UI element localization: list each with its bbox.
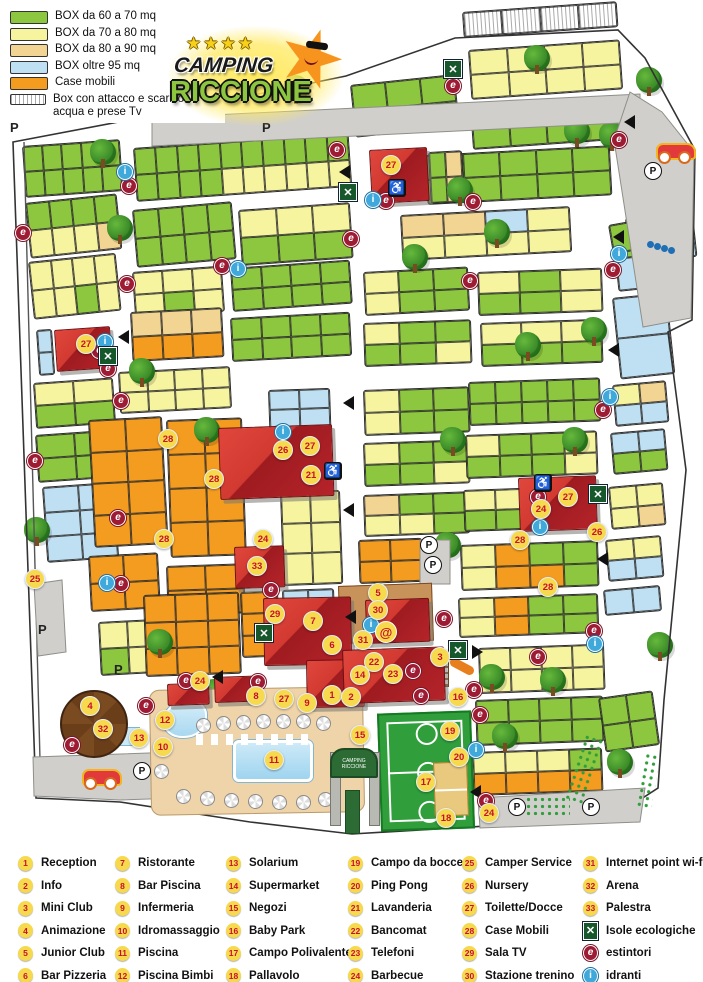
key-number: 32 [583,878,598,893]
key-label: estintori [606,947,651,959]
key-number: 8 [115,878,130,893]
fountain-icon [597,552,608,566]
key-label: Solarium [249,857,298,869]
marker-18: 18 [436,808,456,828]
handicap-icon: ♿ [534,474,552,492]
extinguisher-icon: e [530,649,546,665]
key-item-est: eestintori [583,942,703,965]
four-stars-rating: ★★★★ [186,34,255,54]
key-number: 15 [226,901,241,916]
key-number: 21 [348,901,363,916]
key-number: 2 [18,878,33,893]
marker-16: 16 [448,687,468,707]
key-number: 5 [18,946,33,961]
eco-island-icon: ✕ [589,485,607,503]
legend-swatch-g [10,11,48,24]
extinguisher-icon: e [343,231,359,247]
key-column: 25Camper Service26Nursery27Toilette/Docc… [462,852,574,982]
key-number: 17 [226,946,241,961]
key-label: Ristorante [138,857,195,869]
extinguisher-icon: e [611,132,627,148]
extinguisher-icon: e [119,276,135,292]
hydrant-icon: i [468,742,484,758]
extinguisher-icon: e [465,194,481,210]
key-label: Negozi [249,902,287,914]
marker-23: 23 [383,664,403,684]
umbrella-icon [176,789,191,804]
extinguisher-icon: e [110,510,126,526]
key-item-2: 2Info [18,875,106,898]
marker-7: 7 [303,611,323,631]
hedge [345,790,360,834]
key-label: Campo Polivalente [249,947,352,959]
umbrella-icon [200,791,215,806]
marker-28: 28 [538,577,558,597]
key-label: Barbecue [371,970,423,982]
legend-label: BOX oltre 95 mq [55,60,140,73]
key-label: Baby Park [249,925,305,937]
key-item-25: 25Camper Service [462,852,574,875]
key-label: Bancomat [371,925,427,937]
parking-circle: P [644,162,662,180]
key-number: 25 [462,856,477,871]
key-item-14: 14Supermarket [226,875,352,898]
extinguisher-icon: e [15,225,31,241]
marker-10: 10 [153,737,173,757]
key-item-10: 10Idromassaggio [115,920,220,943]
marker-27: 27 [76,334,96,354]
key-item-26: 26Nursery [462,875,574,898]
umbrella-icon [236,715,251,730]
key-number: 9 [115,901,130,916]
eco-island-icon: ✕ [449,641,467,659]
marker-15: 15 [350,725,370,745]
key-label: idranti [606,970,641,982]
key-item-22: 22Bancomat [348,920,463,943]
key-number: 30 [462,968,477,982]
key-label: Junior Club [41,947,105,959]
key-item-6: 6Bar Pizzeria [18,965,106,982]
fountain-icon [343,396,354,410]
key-item-8: 8Bar Piscina [115,875,220,898]
legend-label: BOX da 70 a 80 mq [55,27,156,40]
key-item-idr: iidranti [583,965,703,982]
key-item-19: 19Campo da bocce [348,852,463,875]
marker-24: 24 [479,803,499,823]
key-number: 24 [348,968,363,982]
parking-label: P [38,622,47,637]
left-parking-strip [34,580,66,656]
marker-31: 31 [353,630,373,650]
key-number: 23 [348,946,363,961]
key-label: Campo da bocce [371,857,463,869]
marker-26: 26 [273,440,293,460]
blue-dot [661,245,668,252]
marker-6: 6 [322,635,342,655]
hydrant-icon: i [532,519,548,535]
entrance-sign: CAMPING RICCIONE [330,748,378,778]
key-item-7: 7Ristorante [115,852,220,875]
key-label: Stazione trenino [485,970,574,982]
extinguisher-icon: e [263,582,279,598]
idr-legend-icon: i [583,968,598,982]
key-label: Idromassaggio [138,925,220,937]
legend-item: BOX da 60 a 70 mq [10,10,225,24]
fountain-icon [608,343,619,357]
marker-28: 28 [154,529,174,549]
umbrella-icon [256,714,271,729]
key-number: 28 [462,923,477,938]
extinguisher-icon: e [472,707,488,723]
key-item-29: 29Sala TV [462,942,574,965]
key-number: 22 [348,923,363,938]
key-item-12: 12Piscina Bimbi [115,965,220,982]
key-label: Case Mobili [485,925,549,937]
handicap-icon: ♿ [388,179,406,197]
building-red-roof [518,475,598,532]
hydrant-icon: i [99,575,115,591]
key-label: Animazione [41,925,106,937]
key-label: Arena [606,880,639,892]
marker-12: 12 [155,710,175,730]
key-label: Piscina [138,947,178,959]
marker-26: 26 [587,522,607,542]
fountain-icon [339,165,350,179]
umbrella-icon [216,716,231,731]
fountain-icon [345,610,356,624]
key-label: Info [41,880,62,892]
extinguisher-icon: e [466,682,482,698]
blue-dot [647,241,654,248]
extinguisher-icon: e [445,78,461,94]
key-number: 29 [462,946,477,961]
umbrella-icon [196,718,211,733]
key-item-11: 11Piscina [115,942,220,965]
extinguisher-icon: e [405,663,421,679]
umbrella-icon [154,764,169,779]
key-number: 11 [115,946,130,961]
key-label: Bar Piscina [138,880,201,892]
key-number: 13 [226,856,241,871]
hydrant-icon: i [365,192,381,208]
key-label: Palestra [606,902,651,914]
key-label: Reception [41,857,97,869]
extinguisher-icon: e [113,393,129,409]
marker-3: 3 [430,647,450,667]
key-label: Infermeria [138,902,194,914]
sun-loungers [196,734,312,745]
key-label: Lavanderia [371,902,432,914]
key-item-17: 17Campo Polivalente [226,942,352,965]
map-key: 1Reception2Info3Mini Club4Animazione5Jun… [0,846,703,982]
parking-label: P [114,662,123,677]
camping-riccione-map-page: CAMPING RICCIONE 27272627212828282433292… [0,0,703,982]
umbrella-icon [248,794,263,809]
key-item-4: 4Animazione [18,920,106,943]
key-label: Isole ecologiche [606,925,695,937]
camping-riccione-logo: ★★★★ CAMPING RICCIONE [168,26,343,126]
fountain-icon [472,645,483,659]
umbrella-icon [224,793,239,808]
key-label: Supermarket [249,880,319,892]
key-label: Sala TV [485,947,527,959]
fountain-icon [624,115,635,129]
key-item-9: 9Infermeria [115,897,220,920]
marker-27: 27 [558,487,578,507]
legend-label: Case mobili [55,76,115,89]
marker-27: 27 [300,436,320,456]
marker-25: 25 [25,569,45,589]
key-label: Pallavolo [249,970,300,982]
car-icon [652,138,696,164]
key-number: 20 [348,878,363,893]
key-item-32: 32Arena [583,875,703,898]
key-item-30: 30Stazione trenino [462,965,574,982]
hydrant-icon: i [602,389,618,405]
map-canvas: CAMPING RICCIONE 27272627212828282433292… [0,0,703,840]
legend-label: BOX da 60 a 70 mq [55,10,156,23]
marker-2: 2 [341,687,361,707]
key-item-5: 5Junior Club [18,942,106,965]
hydrant-icon: i [611,246,627,262]
key-item-1: 1Reception [18,852,106,875]
key-number: 4 [18,923,33,938]
key-number: 27 [462,901,477,916]
key-number: 1 [18,856,33,871]
blue-dot [668,247,675,254]
extinguisher-icon: e [138,698,154,714]
parking-circle: P [508,798,526,816]
extinguisher-icon: e [329,142,345,158]
legend-swatch-b [10,61,48,74]
handicap-icon: ♿ [324,462,342,480]
fountain-icon [613,230,624,244]
key-item-16: 16Baby Park [226,920,352,943]
key-item-33: 33Palestra [583,897,703,920]
marker-1: 1 [322,685,342,705]
logo-camping-text: CAMPING [173,54,275,78]
key-item-31: 31Internet point wi-fi [583,852,703,875]
marker-20: 20 [449,747,469,767]
legend-swatch-t [10,44,48,57]
key-number: 31 [583,856,598,871]
extinguisher-icon: e [462,273,478,289]
logo-riccione-text: RICCIONE [170,76,312,109]
extinguisher-icon: e [436,611,452,627]
eco-island-icon: ✕ [444,60,462,78]
key-item-15: 15Negozi [226,897,352,920]
marker-17: 17 [416,772,436,792]
key-item-28: 28Case Mobili [462,920,574,943]
hydrant-icon: i [117,164,133,180]
key-item-18: 18Pallavolo [226,965,352,982]
key-column: 7Ristorante8Bar Piscina9Infermeria10Idro… [115,852,220,982]
key-column: 13Solarium14Supermarket15Negozi16Baby Pa… [226,852,352,982]
extinguisher-icon: e [64,737,80,753]
key-column: 31Internet point wi-fi32Arena33Palestra✕… [583,852,703,982]
parking-circle: P [133,762,151,780]
marker-11: 11 [264,750,284,770]
marker-28: 28 [158,429,178,449]
umbrella-icon [316,716,331,731]
key-label: Internet point wi-fi [606,857,703,869]
marker-27: 27 [274,689,294,709]
extinguisher-icon: e [121,178,137,194]
eco-island-icon: ✕ [255,624,273,642]
extinguisher-icon: e [605,262,621,278]
key-label: Camper Service [485,857,572,869]
key-number: 19 [348,856,363,871]
est-legend-icon: e [583,946,598,961]
marker-27: 27 [381,155,401,175]
umbrella-icon [296,795,311,810]
parking-circle: P [420,536,438,554]
fountain-icon [212,670,223,684]
marker-14: 14 [350,665,370,685]
hydrant-icon: i [230,261,246,277]
extinguisher-icon: e [113,576,129,592]
key-item-27: 27Toilette/Docce [462,897,574,920]
key-item-21: 21Lavanderia [348,897,463,920]
marker-33: 33 [247,556,267,576]
key-number: 16 [226,923,241,938]
key-number: 26 [462,878,477,893]
eco-legend-icon: ✕ [583,923,598,938]
umbrella-icon [272,795,287,810]
marker-24: 24 [190,671,210,691]
parking-circle: P [582,798,600,816]
key-number: 14 [226,878,241,893]
key-number: 12 [115,968,130,982]
marker-30: 30 [368,600,388,620]
marker-24: 24 [253,529,273,549]
fountain-icon [118,330,129,344]
key-item-13: 13Solarium [226,852,352,875]
marker-9: 9 [297,693,317,713]
car-icon [78,764,122,790]
hedge-dots [525,796,570,818]
extinguisher-icon: e [214,258,230,274]
marker-19: 19 [440,721,460,741]
key-number: 10 [115,923,130,938]
marker-21: 21 [301,465,321,485]
marker-4: 4 [80,696,100,716]
eco-island-icon: ✕ [99,347,117,365]
key-item-eco: ✕Isole ecologiche [583,920,703,943]
key-column: 1Reception2Info3Mini Club4Animazione5Jun… [18,852,106,982]
key-label: Bar Pizzeria [41,970,106,982]
internet-at-icon: @ [375,621,397,643]
key-number: 6 [18,968,33,982]
key-number: 7 [115,856,130,871]
marker-24: 24 [531,499,551,519]
marker-32: 32 [93,719,113,739]
legend-swatch-o [10,77,48,90]
key-label: Nursery [485,880,528,892]
key-label: Piscina Bimbi [138,970,213,982]
volleyball-court [433,761,469,816]
eco-island-icon: ✕ [339,183,357,201]
hydrant-icon: i [275,424,291,440]
umbrella-icon [276,714,291,729]
key-item-3: 3Mini Club [18,897,106,920]
key-label: Toilette/Docce [485,902,563,914]
hydrant-icon: i [587,636,603,652]
extinguisher-icon: e [413,688,429,704]
legend-label: BOX da 80 a 90 mq [55,43,156,56]
key-label: Mini Club [41,902,93,914]
extinguisher-icon: e [27,453,43,469]
key-number: 3 [18,901,33,916]
marker-8: 8 [246,686,266,706]
marker-28: 28 [204,469,224,489]
key-label: Ping Pong [371,880,428,892]
key-item-23: 23Telefoni [348,942,463,965]
marker-13: 13 [129,728,149,748]
key-number: 33 [583,901,598,916]
parking-circle: P [424,556,442,574]
key-item-20: 20Ping Pong [348,875,463,898]
legend-swatch-y [10,28,48,41]
fountain-icon [343,503,354,517]
marker-29: 29 [265,604,285,624]
blue-dot [654,243,661,250]
key-label: Telefoni [371,947,414,959]
umbrella-icon [296,714,311,729]
marker-28: 28 [510,530,530,550]
legend-swatch-h [10,94,46,105]
key-item-24: 24Barbecue [348,965,463,982]
key-number: 18 [226,968,241,982]
key-column: 19Campo da bocce20Ping Pong21Lavanderia2… [348,852,463,982]
